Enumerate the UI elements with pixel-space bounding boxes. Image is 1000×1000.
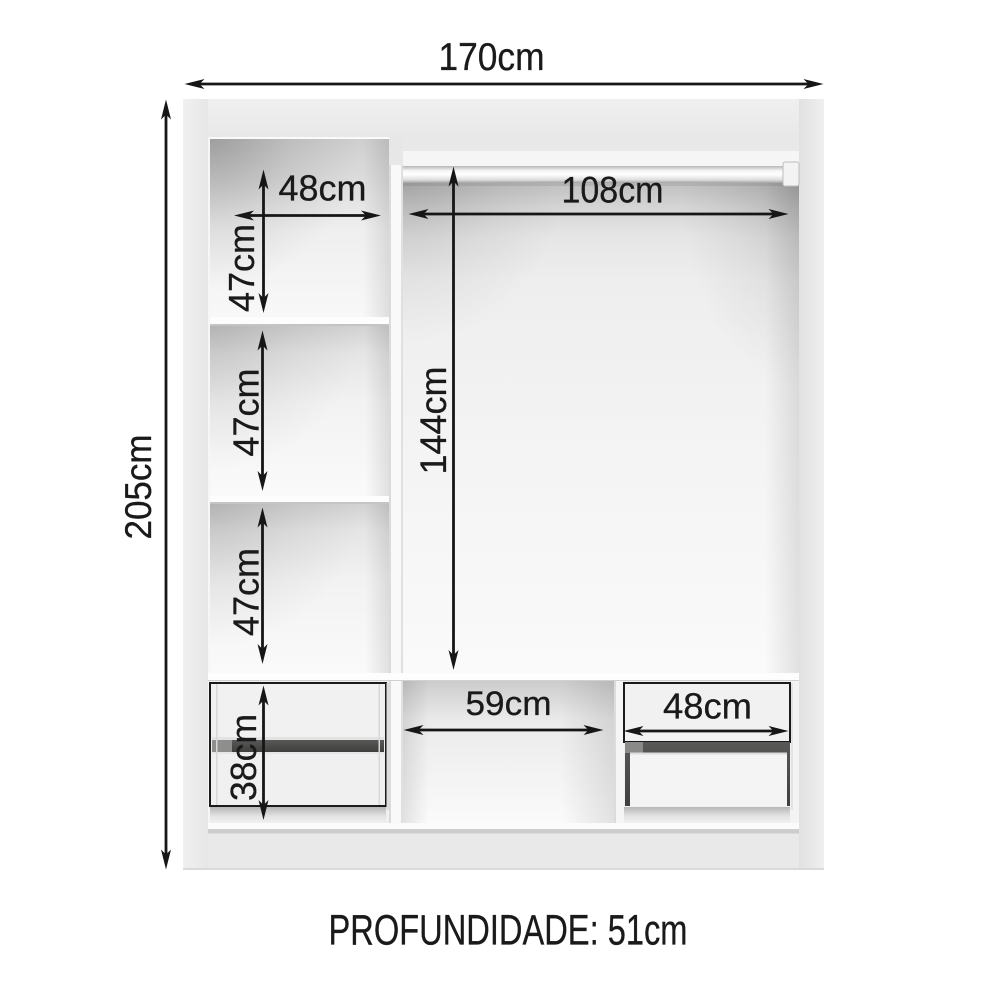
svg-text:PROFUNDIDADE: 51cm: PROFUNDIDADE: 51cm (329, 907, 688, 955)
svg-text:47cm: 47cm (226, 548, 267, 636)
svg-text:205cm: 205cm (118, 435, 159, 540)
svg-text:48cm: 48cm (279, 168, 367, 209)
svg-text:47cm: 47cm (221, 224, 262, 312)
svg-text:47cm: 47cm (226, 369, 267, 457)
svg-text:59cm: 59cm (466, 685, 552, 723)
svg-text:108cm: 108cm (562, 170, 664, 211)
svg-text:170cm: 170cm (439, 36, 545, 79)
svg-text:144cm: 144cm (413, 367, 454, 475)
svg-text:48cm: 48cm (663, 686, 752, 727)
svg-text:38cm: 38cm (223, 714, 264, 801)
